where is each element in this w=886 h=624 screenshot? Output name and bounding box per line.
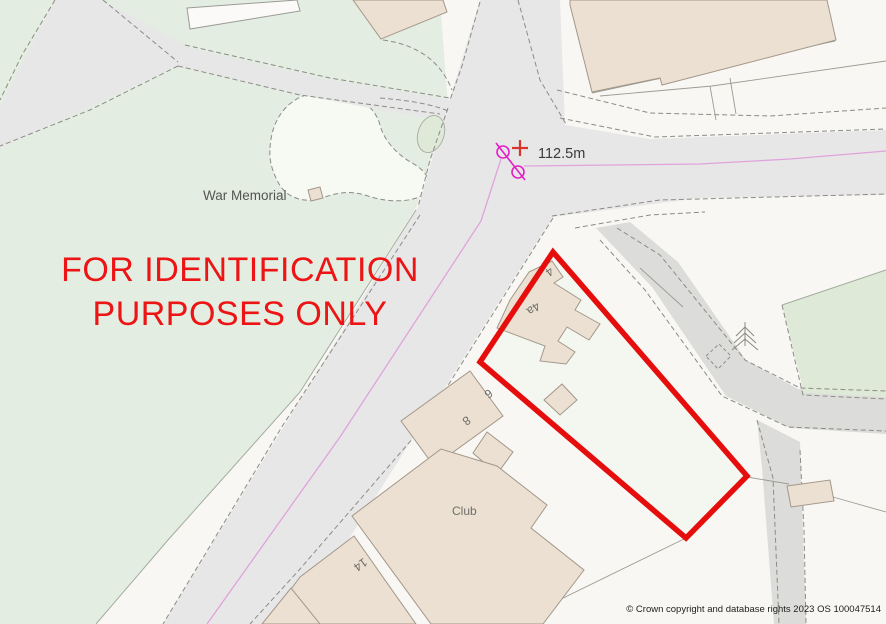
war-memorial-label: War Memorial [203,188,287,203]
caption-line-2: PURPOSES ONLY [93,295,388,333]
map-canvas: War Memorial 112.5m Club 4 4a 6 8 14 FOR… [0,0,886,624]
caption-line-1: FOR IDENTIFICATION [61,251,419,289]
site-location-plan: War Memorial 112.5m Club 4 4a 6 8 14 FOR… [0,0,886,624]
club-label: Club [452,504,477,518]
war-memorial-monument [308,187,323,201]
copyright-notice: © Crown copyright and database rights 20… [626,604,881,615]
spot-height-label: 112.5m [538,146,585,162]
